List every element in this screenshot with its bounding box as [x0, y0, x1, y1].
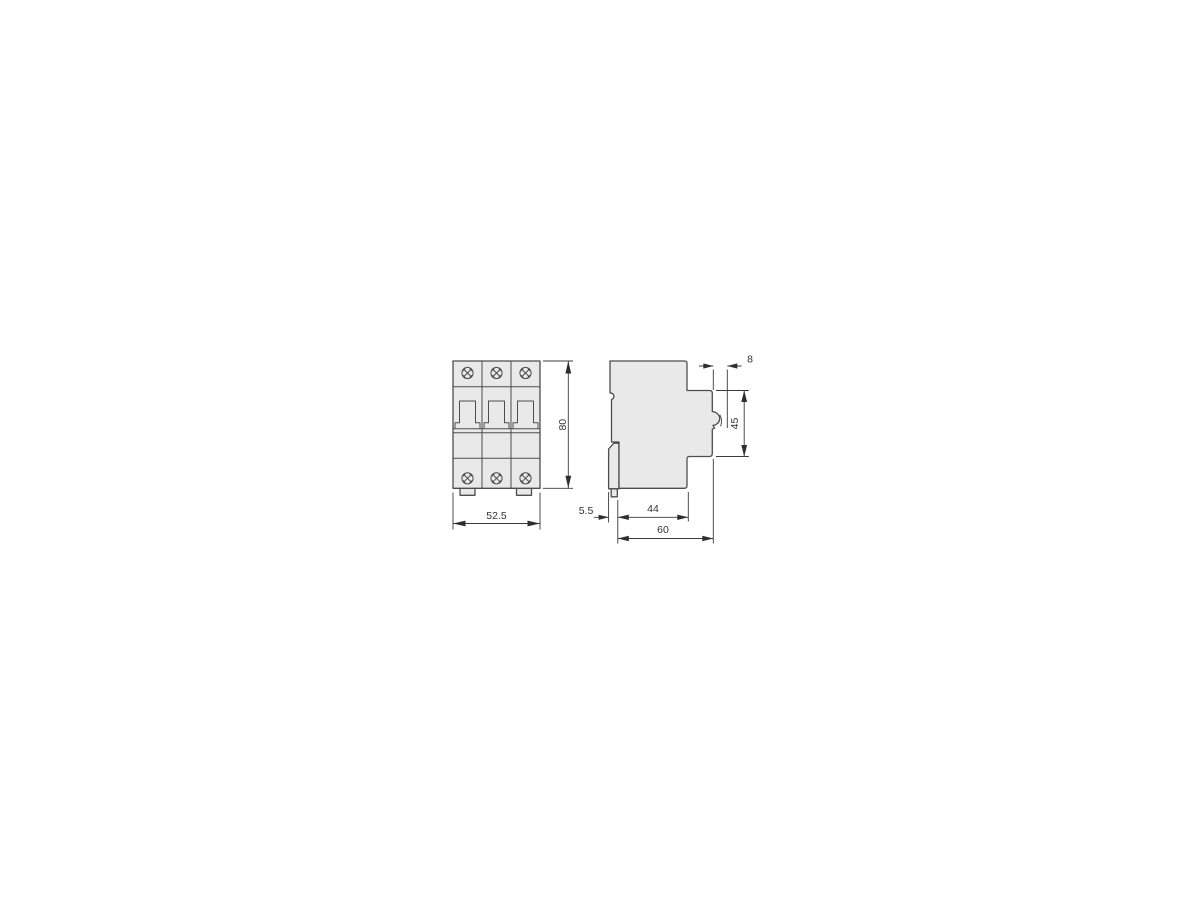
front-housing: [453, 361, 540, 488]
side-body-depth-dimension: 44: [618, 492, 689, 544]
front-section-height-label: 45: [729, 418, 741, 430]
front-width-dimension: 52.5: [453, 493, 540, 530]
drawing-canvas: 52.5 80 8 45 5.5: [0, 0, 1200, 900]
handle-projection-label: 8: [747, 354, 753, 366]
dimension-drawing: 52.5 80 8 45 5.5: [0, 0, 1200, 900]
front-right-tab: [517, 488, 532, 495]
front-width-label: 52.5: [486, 510, 507, 522]
side-back-depth-dimension: 5.5: [579, 492, 609, 523]
din-clip: [609, 443, 619, 489]
body-depth-label: 44: [647, 503, 659, 515]
front-left-tab: [460, 488, 475, 495]
front-height-dimension: 80: [543, 361, 573, 488]
front-view: [453, 361, 540, 495]
front-height-label: 80: [557, 419, 569, 431]
total-depth-label: 60: [657, 524, 669, 536]
back-clip-depth-label: 5.5: [579, 505, 594, 517]
handle-arc: [720, 415, 722, 427]
din-clip-foot: [611, 489, 617, 497]
side-view: [609, 361, 722, 497]
side-housing: [610, 361, 720, 488]
